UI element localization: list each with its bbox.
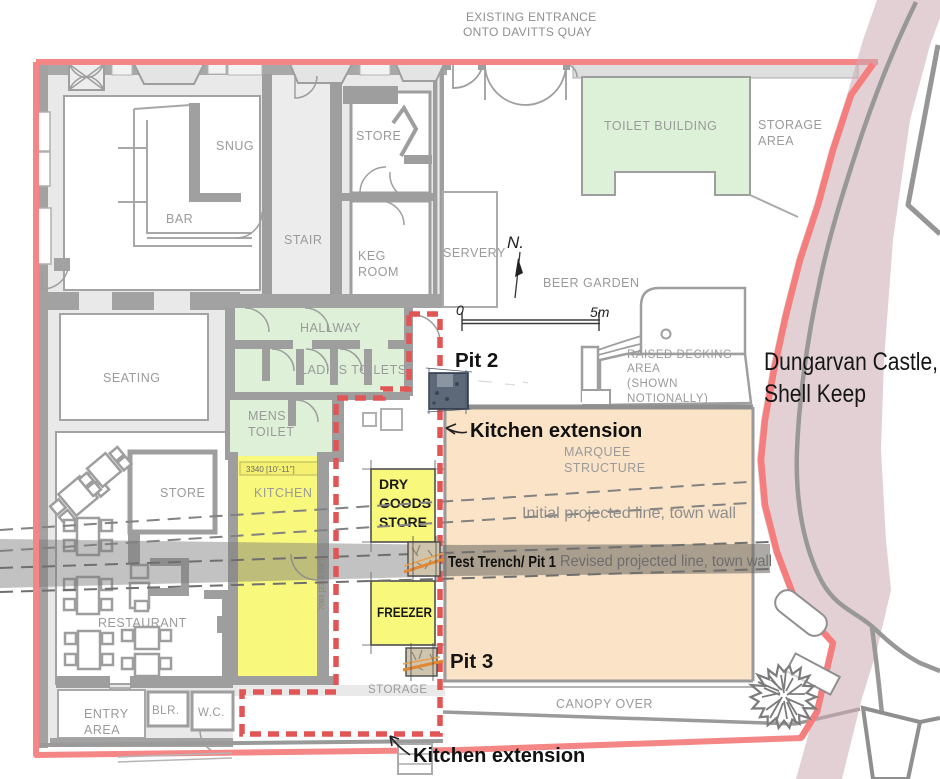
svg-text:3340 [10'-11"]: 3340 [10'-11"]: [246, 465, 295, 474]
svg-text:KEG: KEG: [358, 249, 386, 263]
svg-text:Pit 3: Pit 3: [450, 650, 493, 673]
svg-text:STORAGE: STORAGE: [758, 118, 822, 132]
svg-text:Revised projected line, town w: Revised projected line, town wall: [560, 553, 772, 570]
svg-text:Initial projected line, town w: Initial projected line, town wall: [522, 505, 736, 522]
svg-text:Kitchen extension: Kitchen extension: [413, 745, 585, 767]
svg-text:EXISTING ENTRANCE: EXISTING ENTRANCE: [466, 10, 596, 24]
svg-text:STORAGE: STORAGE: [368, 684, 428, 696]
svg-text:Shell Keep: Shell Keep: [764, 380, 866, 408]
svg-text:BLR.: BLR.: [152, 705, 180, 717]
svg-text:STAIR: STAIR: [284, 233, 322, 247]
svg-text:CANOPY OVER: CANOPY OVER: [556, 697, 653, 711]
svg-text:STORE: STORE: [160, 486, 205, 500]
svg-text:STORE: STORE: [356, 129, 401, 143]
svg-text:Dungarvan Castle,: Dungarvan Castle,: [764, 348, 938, 376]
svg-text:Pit 2: Pit 2: [455, 349, 498, 372]
svg-text:SNUG: SNUG: [216, 139, 254, 153]
svg-text:5m: 5m: [590, 304, 610, 320]
svg-text:ONTO DAVITTS QUAY: ONTO DAVITTS QUAY: [463, 25, 592, 39]
svg-text:RAISED DECKING: RAISED DECKING: [627, 349, 732, 361]
svg-text:STORE: STORE: [379, 514, 427, 530]
svg-text:Kitchen extension: Kitchen extension: [470, 420, 642, 442]
svg-text:ENTRY: ENTRY: [84, 707, 129, 721]
svg-text:STRUCTURE: STRUCTURE: [564, 461, 646, 475]
svg-text:N.: N.: [507, 233, 524, 252]
svg-text:SERVERY: SERVERY: [443, 246, 506, 260]
svg-text:SEATING: SEATING: [103, 371, 160, 385]
svg-text:W.C.: W.C.: [198, 707, 225, 719]
svg-text:MENS: MENS: [248, 409, 286, 423]
svg-text:AREA: AREA: [627, 363, 660, 375]
svg-text:0: 0: [456, 302, 464, 318]
svg-text:(SHOWN: (SHOWN: [627, 378, 678, 390]
svg-text:AREA: AREA: [84, 723, 120, 737]
svg-text:MARQUEE: MARQUEE: [564, 445, 631, 459]
svg-text:DRY: DRY: [379, 476, 409, 492]
svg-text:LADIES TOILETS: LADIES TOILETS: [300, 363, 407, 377]
svg-text:AREA: AREA: [758, 134, 794, 148]
svg-text:BAR: BAR: [166, 212, 193, 226]
svg-text:Test Trench/ Pit 1: Test Trench/ Pit 1: [448, 554, 556, 571]
svg-text:KITCHEN: KITCHEN: [254, 486, 312, 500]
svg-text:BEER GARDEN: BEER GARDEN: [543, 276, 640, 290]
svg-text:FREEZER: FREEZER: [377, 604, 432, 620]
svg-text:NOTIONALLY): NOTIONALLY): [627, 393, 708, 405]
svg-text:ROOM: ROOM: [358, 265, 399, 279]
svg-text:TOILET: TOILET: [248, 425, 295, 439]
svg-text:TOILET BUILDING: TOILET BUILDING: [604, 119, 717, 133]
svg-text:HALLWAY: HALLWAY: [300, 321, 361, 335]
